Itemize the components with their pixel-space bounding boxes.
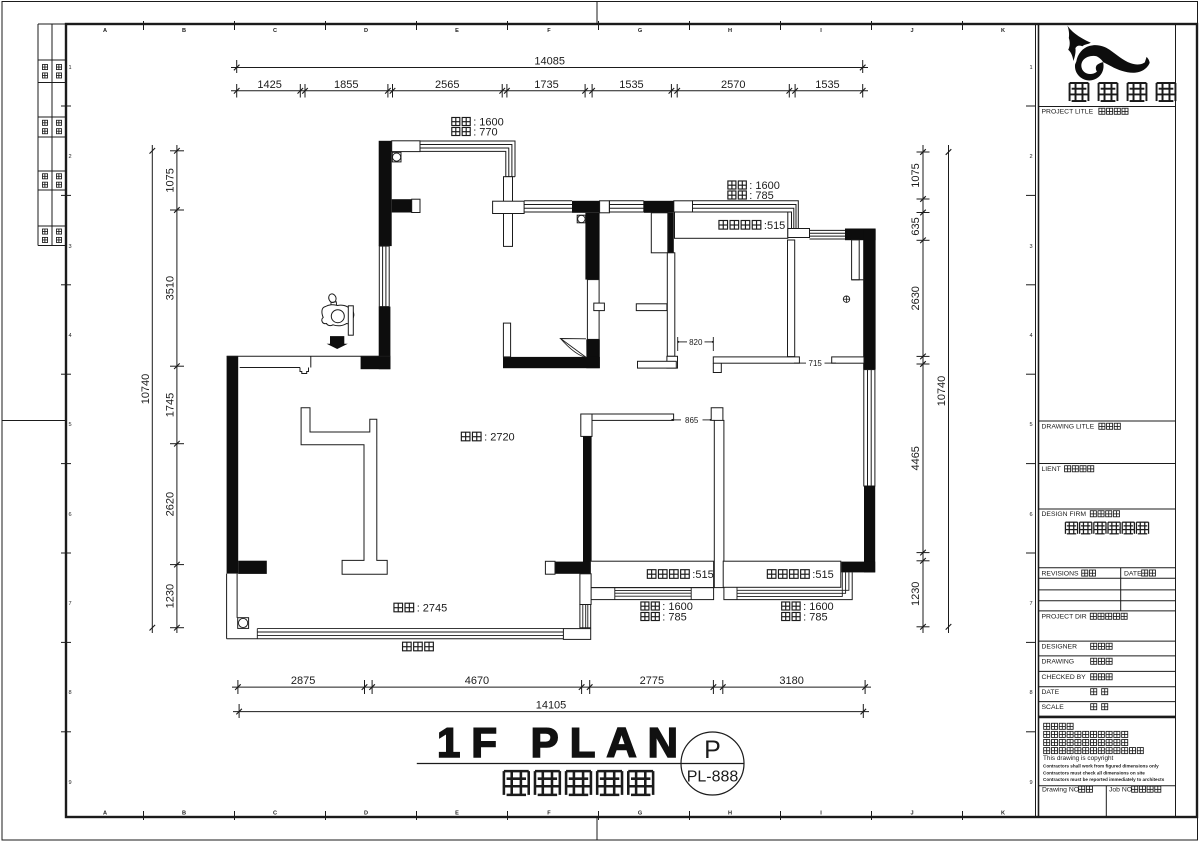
svg-text:C: C xyxy=(273,811,277,817)
svg-text::515: :515 xyxy=(692,569,713,581)
svg-text:J: J xyxy=(910,28,913,34)
svg-text:9: 9 xyxy=(68,780,71,786)
svg-text:6: 6 xyxy=(68,512,71,518)
svg-text:D: D xyxy=(364,28,368,34)
svg-text:820: 820 xyxy=(689,338,703,347)
svg-text:H: H xyxy=(728,811,732,817)
svg-text:2630: 2630 xyxy=(910,286,922,310)
svg-text::515: :515 xyxy=(812,569,833,581)
svg-text:E: E xyxy=(455,28,459,34)
svg-text:K: K xyxy=(1001,811,1005,817)
svg-text:1: 1 xyxy=(68,65,71,71)
svg-text:K: K xyxy=(1001,28,1005,34)
svg-text:B: B xyxy=(182,28,186,34)
svg-text:F: F xyxy=(547,811,551,817)
svg-text::515: :515 xyxy=(764,220,785,232)
svg-text:1745: 1745 xyxy=(164,393,176,417)
svg-text:6: 6 xyxy=(1029,512,1032,518)
svg-text:4670: 4670 xyxy=(465,675,489,687)
svg-text:A: A xyxy=(103,811,107,817)
svg-text:SCALE: SCALE xyxy=(1042,704,1065,711)
svg-text:LIENT: LIENT xyxy=(1042,466,1061,473)
svg-text:3510: 3510 xyxy=(164,276,176,300)
svg-text:14105: 14105 xyxy=(536,700,567,712)
svg-text:715: 715 xyxy=(809,359,823,368)
svg-text:2: 2 xyxy=(1029,154,1032,160)
svg-text:A: A xyxy=(103,28,107,34)
svg-text:: 785: : 785 xyxy=(662,611,686,623)
svg-text:1230: 1230 xyxy=(910,582,922,606)
svg-text:1: 1 xyxy=(1029,65,1032,71)
svg-text:3180: 3180 xyxy=(779,675,803,687)
svg-text:10740: 10740 xyxy=(140,374,152,405)
svg-text:1855: 1855 xyxy=(334,79,358,91)
svg-text:CHECKED BY: CHECKED BY xyxy=(1042,674,1087,681)
svg-text:4465: 4465 xyxy=(910,446,922,470)
svg-text:B: B xyxy=(182,811,186,817)
svg-text:1075: 1075 xyxy=(164,168,176,192)
svg-text:H: H xyxy=(728,28,732,34)
svg-text:Contractors must check all dim: Contractors must check all dimensions on… xyxy=(1043,770,1145,775)
svg-text:1535: 1535 xyxy=(815,79,839,91)
svg-text:8: 8 xyxy=(68,690,71,696)
svg-text:Job NO: Job NO xyxy=(1109,787,1132,794)
svg-text:4: 4 xyxy=(68,333,71,339)
svg-text:1F PLAN: 1F PLAN xyxy=(437,719,689,766)
svg-text:DRAWING: DRAWING xyxy=(1042,659,1075,666)
svg-text:2620: 2620 xyxy=(164,492,176,516)
svg-text:DESIGN FIRM: DESIGN FIRM xyxy=(1042,511,1087,518)
svg-text:DATE: DATE xyxy=(1042,689,1060,696)
svg-text:DRAWING LITLE: DRAWING LITLE xyxy=(1042,424,1095,431)
svg-text:Contractors must be reported i: Contractors must be reported immediately… xyxy=(1043,777,1165,782)
svg-text:G: G xyxy=(638,28,642,34)
svg-text:635: 635 xyxy=(910,217,922,235)
svg-text:: 785: : 785 xyxy=(749,190,773,202)
svg-text:865: 865 xyxy=(685,416,699,425)
svg-text:: 2720: : 2720 xyxy=(484,431,515,443)
svg-text:: 770: : 770 xyxy=(473,126,497,138)
svg-text:2775: 2775 xyxy=(640,675,664,687)
svg-text:1535: 1535 xyxy=(619,79,643,91)
svg-text:D: D xyxy=(364,811,368,817)
svg-text:This drawing is copyright: This drawing is copyright xyxy=(1043,755,1114,762)
svg-text:9: 9 xyxy=(1029,780,1032,786)
svg-text:C: C xyxy=(273,28,277,34)
svg-text:: 785: : 785 xyxy=(803,611,827,623)
svg-text:DATE: DATE xyxy=(1124,570,1142,577)
svg-text:2: 2 xyxy=(68,154,71,160)
svg-text:PROJECT DIR: PROJECT DIR xyxy=(1042,614,1087,621)
svg-text:14085: 14085 xyxy=(534,56,565,68)
svg-text:7: 7 xyxy=(1029,601,1032,607)
svg-text:3: 3 xyxy=(1029,244,1032,250)
svg-text:10740: 10740 xyxy=(936,376,948,407)
svg-text:P: P xyxy=(704,736,721,764)
svg-text:2570: 2570 xyxy=(721,79,745,91)
svg-text:PROJECT LITLE: PROJECT LITLE xyxy=(1042,109,1094,116)
svg-text:1230: 1230 xyxy=(164,584,176,608)
svg-text:2565: 2565 xyxy=(435,79,459,91)
svg-text:5: 5 xyxy=(68,422,71,428)
svg-text:5: 5 xyxy=(1029,422,1032,428)
svg-text:G: G xyxy=(638,811,642,817)
svg-text:: 2745: : 2745 xyxy=(417,602,448,614)
svg-text:F: F xyxy=(547,28,551,34)
svg-text:8: 8 xyxy=(1029,690,1032,696)
svg-text:Contractors shall work from fi: Contractors shall work from figured dime… xyxy=(1043,763,1159,768)
svg-text:7: 7 xyxy=(68,601,71,607)
svg-text:J: J xyxy=(910,811,913,817)
svg-text:E: E xyxy=(455,811,459,817)
svg-text:1425: 1425 xyxy=(257,79,281,91)
svg-text:3: 3 xyxy=(68,244,71,250)
svg-text:Drawing NO: Drawing NO xyxy=(1042,787,1079,794)
svg-text:2875: 2875 xyxy=(291,675,315,687)
svg-text:1735: 1735 xyxy=(534,79,558,91)
svg-text:REVISIONS: REVISIONS xyxy=(1042,570,1079,577)
svg-text:DESIGNER: DESIGNER xyxy=(1042,644,1078,651)
svg-text:PL-888: PL-888 xyxy=(687,769,739,786)
svg-text:1075: 1075 xyxy=(910,163,922,187)
svg-text:4: 4 xyxy=(1029,333,1032,339)
